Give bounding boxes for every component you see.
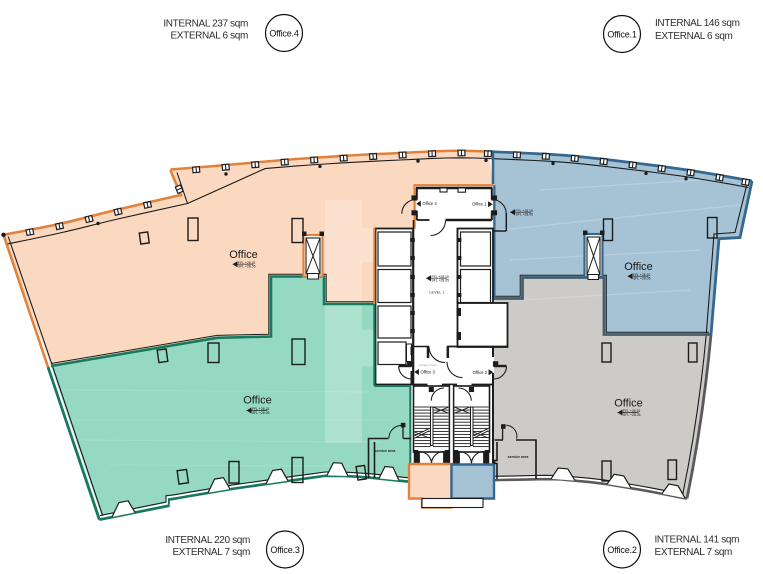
svg-text:Office 3: Office 3 <box>421 370 436 375</box>
svg-text:Office 2: Office 2 <box>473 370 488 375</box>
svg-text:SFL +28.05: SFL +28.05 <box>633 277 651 281</box>
svg-text:escape corridor: escape corridor <box>419 363 437 367</box>
svg-text:SFL +28.05: SFL +28.05 <box>252 411 270 415</box>
svg-text:service area: service area <box>375 449 397 453</box>
svg-text:Office.1: Office.1 <box>607 30 636 40</box>
svg-text:SFL +28.05: SFL +28.05 <box>238 265 256 269</box>
svg-text:Office: Office <box>229 249 258 261</box>
svg-text:Office: Office <box>624 261 653 273</box>
svg-text:EXTERNAL 7 sqm: EXTERNAL 7 sqm <box>172 547 250 558</box>
svg-text:Office: Office <box>243 395 272 407</box>
svg-text:INTERNAL 237 sqm: INTERNAL 237 sqm <box>163 18 248 29</box>
svg-text:Office.3: Office.3 <box>270 545 299 555</box>
svg-text:INTERNAL 141 sqm: INTERNAL 141 sqm <box>655 535 740 546</box>
svg-text:Office.4: Office.4 <box>269 29 298 39</box>
svg-text:service area: service area <box>508 455 530 459</box>
svg-text:INTERNAL 146 sqm: INTERNAL 146 sqm <box>655 18 740 29</box>
svg-text:Office.2: Office.2 <box>607 545 636 555</box>
svg-text:SFL +28.05: SFL +28.05 <box>516 213 534 217</box>
svg-text:SFL +28.05: SFL +28.05 <box>432 279 450 283</box>
svg-text:Office 1: Office 1 <box>472 202 487 207</box>
svg-text:Office: Office <box>614 398 643 410</box>
svg-text:LEVEL 1: LEVEL 1 <box>429 290 444 295</box>
svg-text:SFL +28.05: SFL +28.05 <box>623 413 641 417</box>
svg-text:EXTERNAL 7 sqm: EXTERNAL 7 sqm <box>655 547 733 558</box>
svg-text:Office 4: Office 4 <box>422 201 437 206</box>
svg-text:EXTERNAL 6 sqm: EXTERNAL 6 sqm <box>170 30 248 41</box>
svg-text:INTERNAL 220 sqm: INTERNAL 220 sqm <box>165 535 250 546</box>
svg-text:EXTERNAL 6 sqm: EXTERNAL 6 sqm <box>655 31 733 42</box>
